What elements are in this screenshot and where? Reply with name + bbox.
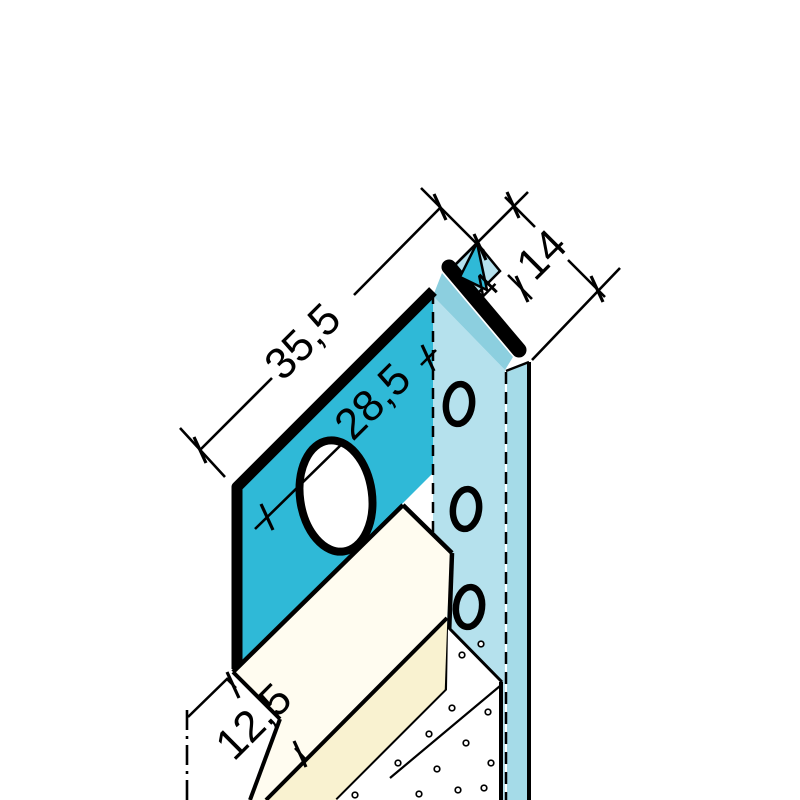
profile-side-strip — [507, 363, 529, 800]
profile-diagram: 35,5 28,5 14 4 12,5 — [0, 0, 800, 800]
dim-total-width: 35,5 — [255, 294, 350, 389]
technical-drawing-canvas: 35,5 28,5 14 4 12,5 — [0, 0, 800, 800]
